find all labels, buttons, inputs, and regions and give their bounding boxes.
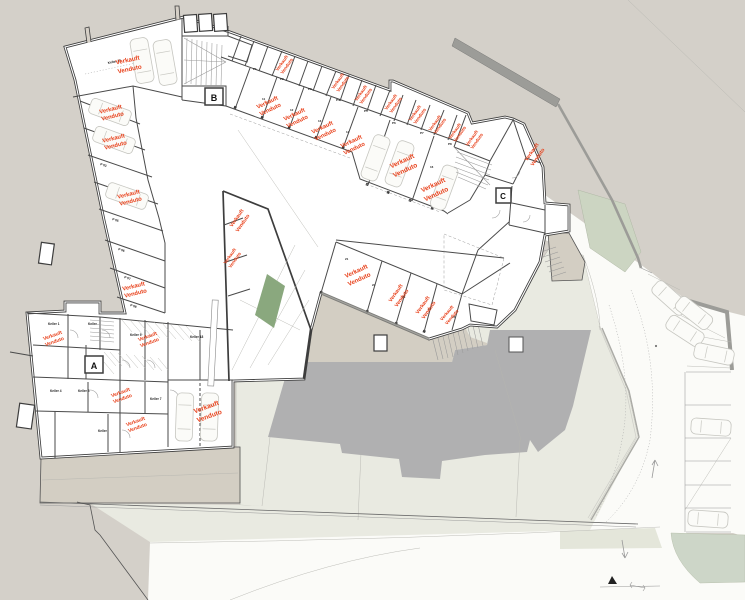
svg-text:P2: P2 <box>280 77 284 81</box>
svg-text:C: C <box>500 192 506 201</box>
svg-text:P6: P6 <box>392 121 396 125</box>
svg-text:Keller 7: Keller 7 <box>150 397 162 401</box>
svg-text:21: 21 <box>345 257 349 261</box>
svg-text:P4: P4 <box>336 98 340 102</box>
svg-text:14: 14 <box>346 130 350 134</box>
svg-text:B: B <box>211 93 218 103</box>
svg-text:P1: P1 <box>253 67 257 71</box>
svg-text:P3: P3 <box>308 87 312 91</box>
svg-text:P7: P7 <box>420 131 424 135</box>
svg-text:13: 13 <box>318 119 322 123</box>
svg-text:Keller 4: Keller 4 <box>50 389 62 393</box>
svg-text:Keller 18: Keller 18 <box>190 335 204 339</box>
svg-text:16: 16 <box>430 165 434 169</box>
svg-text:A: A <box>91 361 98 371</box>
svg-text:P8: P8 <box>448 142 452 146</box>
svg-text:Keller 1: Keller 1 <box>48 322 60 326</box>
svg-text:Keller 5: Keller 5 <box>78 389 90 393</box>
svg-text:Keller: Keller <box>98 429 108 433</box>
svg-text:P5: P5 <box>364 109 368 113</box>
